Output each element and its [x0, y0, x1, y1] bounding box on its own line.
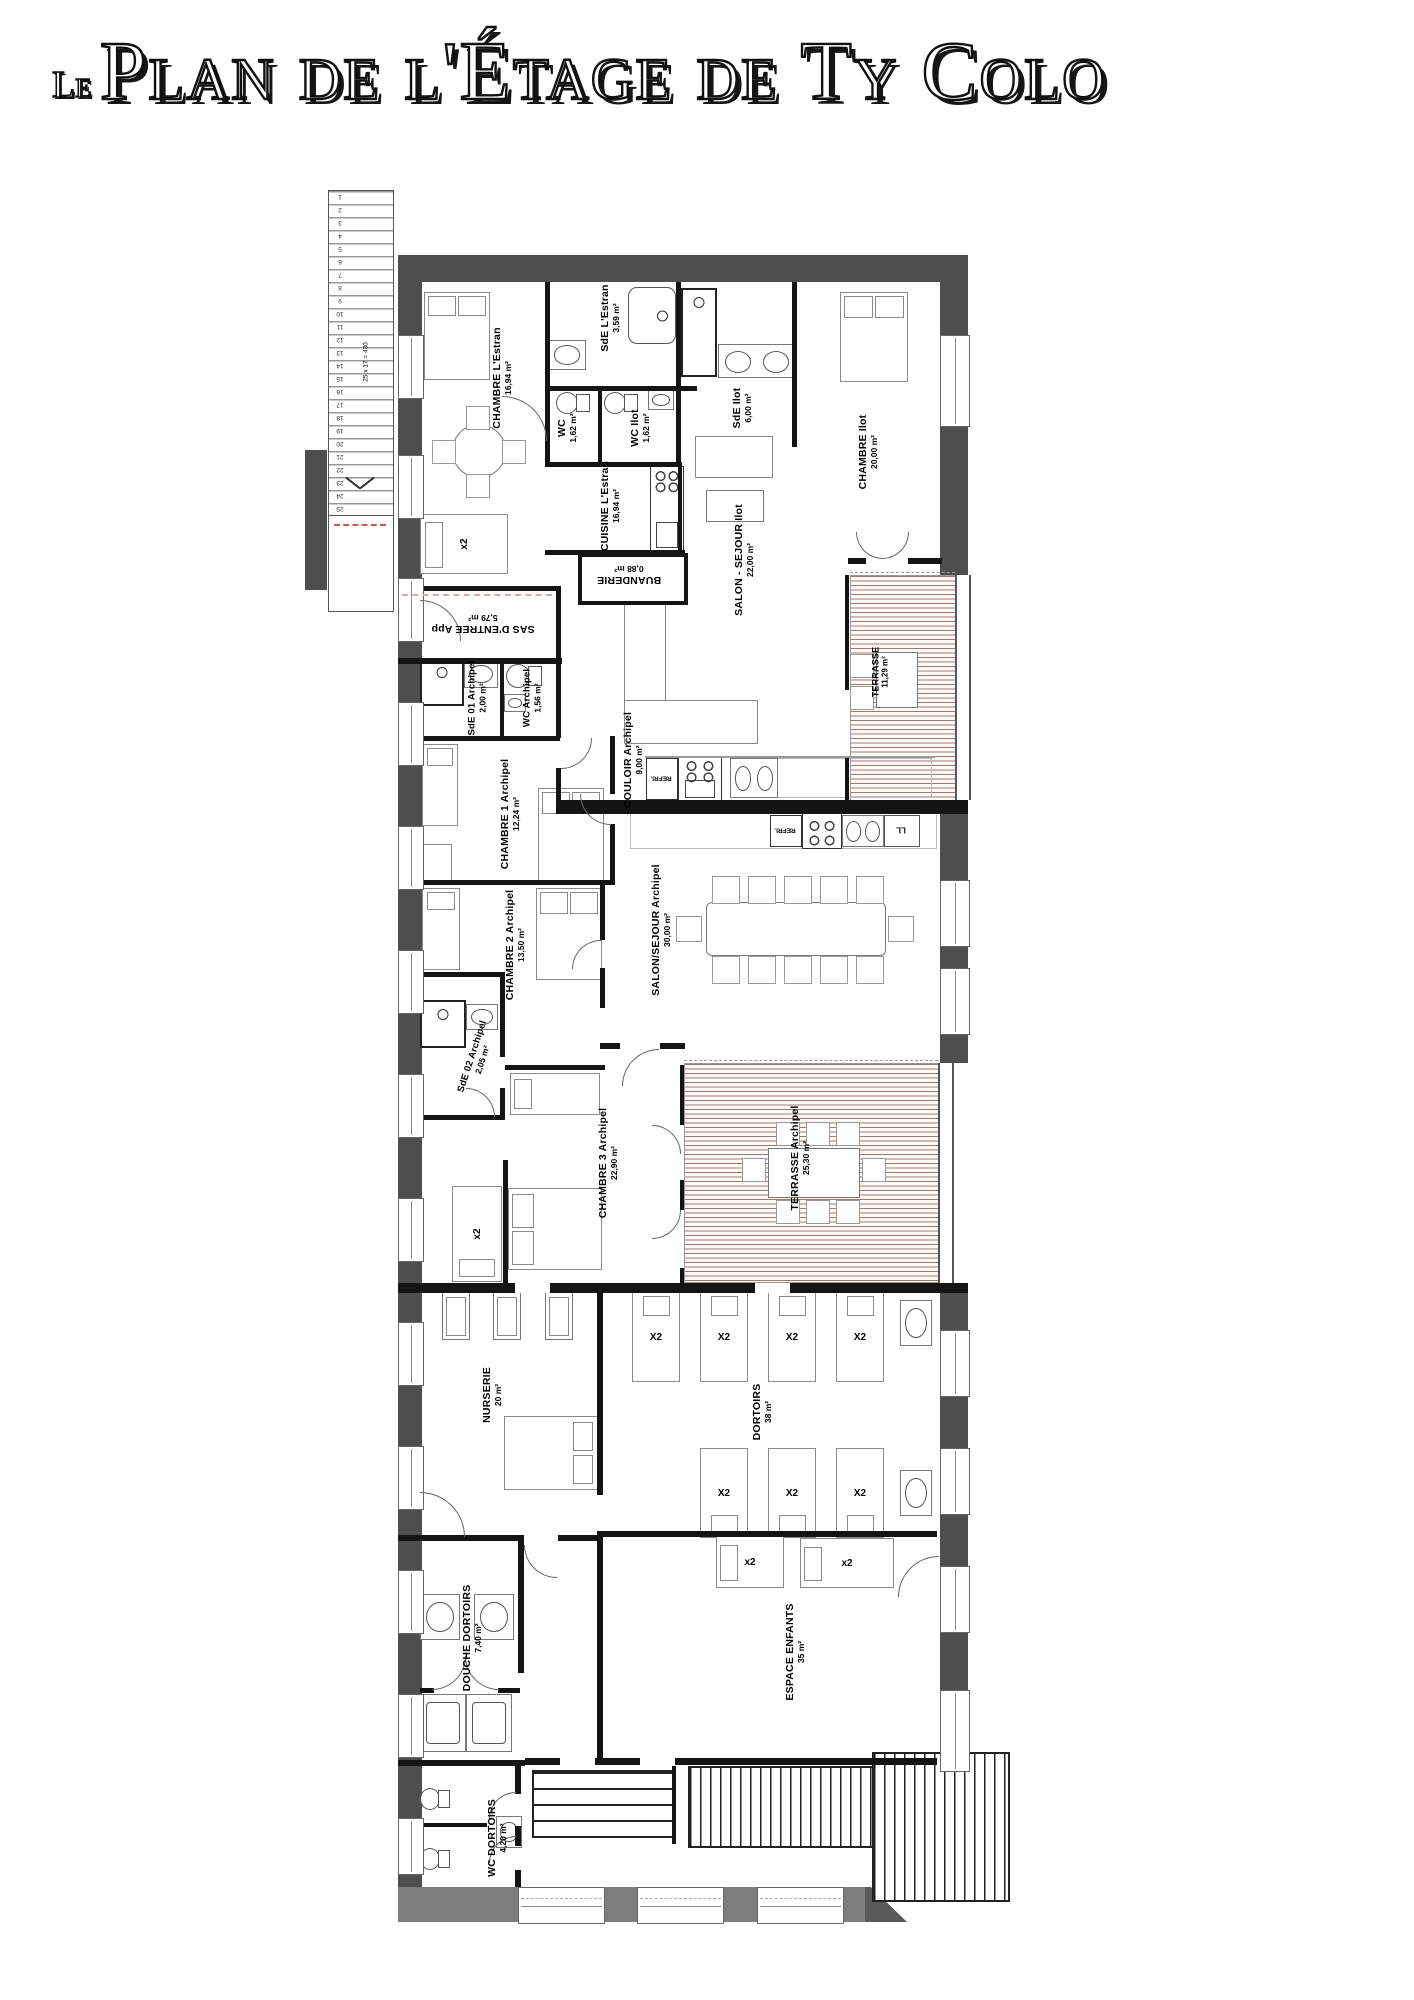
chair [676, 916, 702, 942]
window [398, 335, 424, 399]
title-text: Plan de l'Étage de Ty Colo [100, 30, 1107, 114]
wall [420, 880, 615, 885]
wall [597, 1541, 603, 1763]
single-bed [422, 744, 458, 826]
dining-table [706, 902, 886, 956]
floor-plan-page: Le Plan de l'Étage de Ty Colo 1234567891… [0, 0, 1414, 2000]
crib [442, 1290, 470, 1340]
bed-x2: X2 [632, 1292, 680, 1382]
room-label-sde-ilot: SdE Ilot6,00 m² [731, 388, 753, 429]
round-table [452, 424, 506, 478]
door-arc [898, 1556, 939, 1597]
double-sink [718, 344, 796, 378]
single-bed [510, 1073, 600, 1115]
title-prefix: Le [52, 66, 92, 104]
room-label-buanderie: BUANDERIE0,88 m² [597, 564, 661, 586]
chair [748, 876, 776, 904]
terrace-railing [955, 575, 971, 800]
sink [900, 1300, 932, 1346]
window [518, 1887, 605, 1924]
wall [545, 386, 697, 391]
window [940, 968, 970, 1035]
room-label-salon-ilot: SALON - SEJOUR Ilot22,00 m² [733, 504, 755, 616]
chair [742, 1158, 766, 1182]
sofa [695, 436, 773, 478]
room-label-chambre3: CHAMBRE 3 Archipel22,90 m² [597, 1108, 619, 1219]
bed-x2: x2 [452, 1186, 502, 1282]
chair [784, 956, 812, 984]
window [398, 1570, 424, 1634]
bed-x2: X2 [836, 1292, 884, 1382]
chair [820, 956, 848, 984]
chair [466, 406, 490, 430]
room-label-chambre-estran: CHAMBRE L'Estran16,94 m² [491, 327, 513, 428]
room-label-terrasse-archipel: TERRASSE Archipel25,30 m² [789, 1105, 811, 1210]
wall [420, 736, 560, 741]
wall [680, 1180, 684, 1210]
wall [597, 1531, 937, 1537]
page-title: Le Plan de l'Étage de Ty Colo [52, 30, 1132, 114]
interior-stairs [532, 1770, 674, 1838]
wall [305, 450, 327, 590]
chair [836, 1200, 860, 1224]
wall [600, 1043, 620, 1049]
door-arc [652, 1210, 681, 1239]
room-label-nurserie: NURSERIE20 m² [481, 1367, 503, 1423]
entry-landing [328, 515, 394, 612]
door-gap [515, 1283, 550, 1293]
window [940, 1330, 970, 1397]
entry-line [402, 594, 552, 596]
double-bed [840, 292, 908, 382]
wall [845, 575, 849, 690]
room-label-douche-dortoirs: DOUCHE DORTOIRS7,40 m² [461, 1585, 483, 1692]
crib [545, 1290, 573, 1340]
stove [802, 813, 842, 849]
stove [678, 756, 722, 802]
window [940, 335, 970, 427]
wall [600, 968, 605, 1008]
door-arc [420, 1492, 465, 1537]
room-label-sas: SAS D'ENTREE App5,79 m² [431, 613, 534, 635]
counter [776, 758, 932, 798]
bed-x2: X2 [768, 1448, 816, 1538]
single-bed [422, 888, 460, 970]
interior-stairs [688, 1766, 876, 1848]
chair [856, 956, 884, 984]
crib [493, 1290, 521, 1340]
chair [836, 1122, 860, 1146]
window [757, 1887, 844, 1924]
shower-tray [420, 1694, 466, 1752]
wall [515, 1870, 521, 1887]
wall [398, 1760, 525, 1766]
entry-line [334, 524, 386, 526]
window [398, 1198, 424, 1262]
wall [600, 885, 605, 940]
toilet [420, 1846, 450, 1870]
wall [672, 1766, 676, 1844]
chair [502, 440, 526, 464]
wall [598, 386, 602, 466]
window [398, 702, 424, 766]
chair [856, 876, 884, 904]
wall [610, 736, 615, 794]
sink [900, 1470, 932, 1516]
window [637, 1887, 724, 1924]
bed-x2: X2 [768, 1292, 816, 1382]
window [940, 880, 970, 947]
room-label-salon-archipel: SALON/SEJOUR Archipel30,00 m² [650, 864, 672, 996]
sink [548, 340, 586, 370]
wall [515, 1766, 521, 1794]
wall [505, 1065, 605, 1070]
wall [518, 1541, 524, 1673]
counter [645, 756, 935, 758]
wall [503, 1160, 508, 1285]
door-gap [560, 1758, 595, 1765]
room-label-chambre-ilot: CHAMBRE Ilot20,00 m² [857, 415, 879, 490]
wall [610, 824, 615, 884]
bed-x2: X2 [700, 1292, 748, 1382]
wall [678, 462, 682, 555]
bed-x2: x2 [800, 1538, 894, 1588]
door-gap [755, 1283, 790, 1293]
wall [660, 1043, 685, 1049]
interior-stairs [872, 1752, 1010, 1902]
chair [712, 956, 740, 984]
room-label-wc-ilot: WC Ilot1,62 m² [629, 409, 651, 447]
sink [420, 1594, 460, 1640]
toilet [556, 390, 590, 414]
window [398, 1818, 424, 1875]
wall [845, 758, 849, 803]
window [398, 950, 424, 1014]
wall [420, 1823, 487, 1827]
shower-tray [466, 1694, 512, 1752]
room-label-wc: WC1,62 m² [556, 413, 578, 442]
room-label-wc-archipel: WC Archipel1,56 m² [522, 669, 543, 727]
wall [848, 558, 866, 564]
wall [420, 972, 505, 977]
wall [556, 586, 561, 664]
window [398, 455, 424, 519]
room-label-chambre2: CHAMBRE 2 Archipel13,50 m² [504, 890, 526, 1001]
room-label-couloir: COULOIR Archipel9,00 m² [622, 712, 644, 808]
kitchen-sink [842, 815, 884, 847]
fridge-label: REFRI. [774, 827, 795, 834]
washer-label: LL [896, 826, 906, 835]
wall [908, 558, 942, 564]
bed-x2: X2 [700, 1448, 748, 1538]
room-label-chambre1: CHAMBRE 1 Archipel12,24 m² [499, 759, 521, 870]
window [398, 1074, 424, 1138]
window [940, 1566, 970, 1633]
door-arc [524, 1545, 557, 1578]
kitchen-sink [730, 758, 778, 798]
room-label-espace-enfants: ESPACE ENFANTS35 m² [784, 1603, 806, 1700]
corner-sofa [624, 700, 758, 744]
door-arc [561, 738, 592, 769]
bed-x2: X2 [836, 1448, 884, 1538]
wall [498, 1688, 520, 1693]
bed-x2: x2 [716, 1536, 784, 1588]
chair [784, 876, 812, 904]
fridge-label: REFRI. [650, 775, 671, 782]
bench [420, 844, 452, 882]
door-gap [640, 1758, 675, 1765]
wall [556, 658, 561, 738]
wall [420, 586, 560, 591]
window [398, 1322, 424, 1386]
window [940, 1448, 970, 1515]
window [398, 1694, 424, 1758]
wall [680, 1065, 684, 1125]
room-label-terrasse: TERRASSE11,29 m² [871, 647, 890, 698]
wall [597, 1293, 603, 1495]
room-label-cuisine: CUISINE L'Estran16,94 m² [599, 461, 621, 551]
wall [680, 1268, 684, 1283]
room-label-wc-dortoirs: WC DORTOIRS4,20 m² [486, 1799, 508, 1877]
chair [862, 1158, 886, 1182]
chair [820, 876, 848, 904]
terrace-table [768, 1148, 860, 1198]
double-bed [424, 292, 490, 380]
door-arc [882, 532, 909, 559]
chair [748, 956, 776, 984]
stair-numbers: 1234567891011121314151617181920212223242… [332, 190, 348, 515]
sink [648, 390, 674, 410]
stair-annotation: 25 x 17 = 430 [363, 342, 370, 382]
shower [420, 1000, 466, 1048]
bed-x2: x2 [420, 514, 508, 574]
wall [676, 282, 681, 466]
room-label-sde01: SdE 01 Archipel2,00 m² [467, 661, 488, 736]
door-arc [652, 1125, 681, 1154]
wall [556, 800, 968, 814]
window [398, 826, 424, 890]
wall [500, 658, 504, 738]
double-bed [504, 1416, 598, 1490]
wall-top [398, 255, 968, 282]
terrace-railing [938, 1063, 954, 1285]
wall [500, 1088, 505, 1118]
door-arc [856, 532, 883, 559]
chair [888, 916, 914, 942]
terrace-edge [850, 572, 955, 573]
toilet [420, 1786, 450, 1810]
shower [420, 658, 464, 706]
room-label-dortoirs: DORTOIRS38 m² [751, 1384, 773, 1441]
shower [681, 288, 717, 377]
room-label-sde-estran: SdE L'Estran3,59 m² [599, 284, 621, 351]
door-arc [622, 1049, 659, 1086]
chair [466, 474, 490, 498]
wall [398, 1283, 968, 1293]
bathtub [628, 287, 676, 344]
window-door [940, 1690, 970, 1772]
terrace-edge [684, 1060, 938, 1061]
wall [792, 282, 797, 447]
chair [432, 440, 456, 464]
chair [712, 876, 740, 904]
